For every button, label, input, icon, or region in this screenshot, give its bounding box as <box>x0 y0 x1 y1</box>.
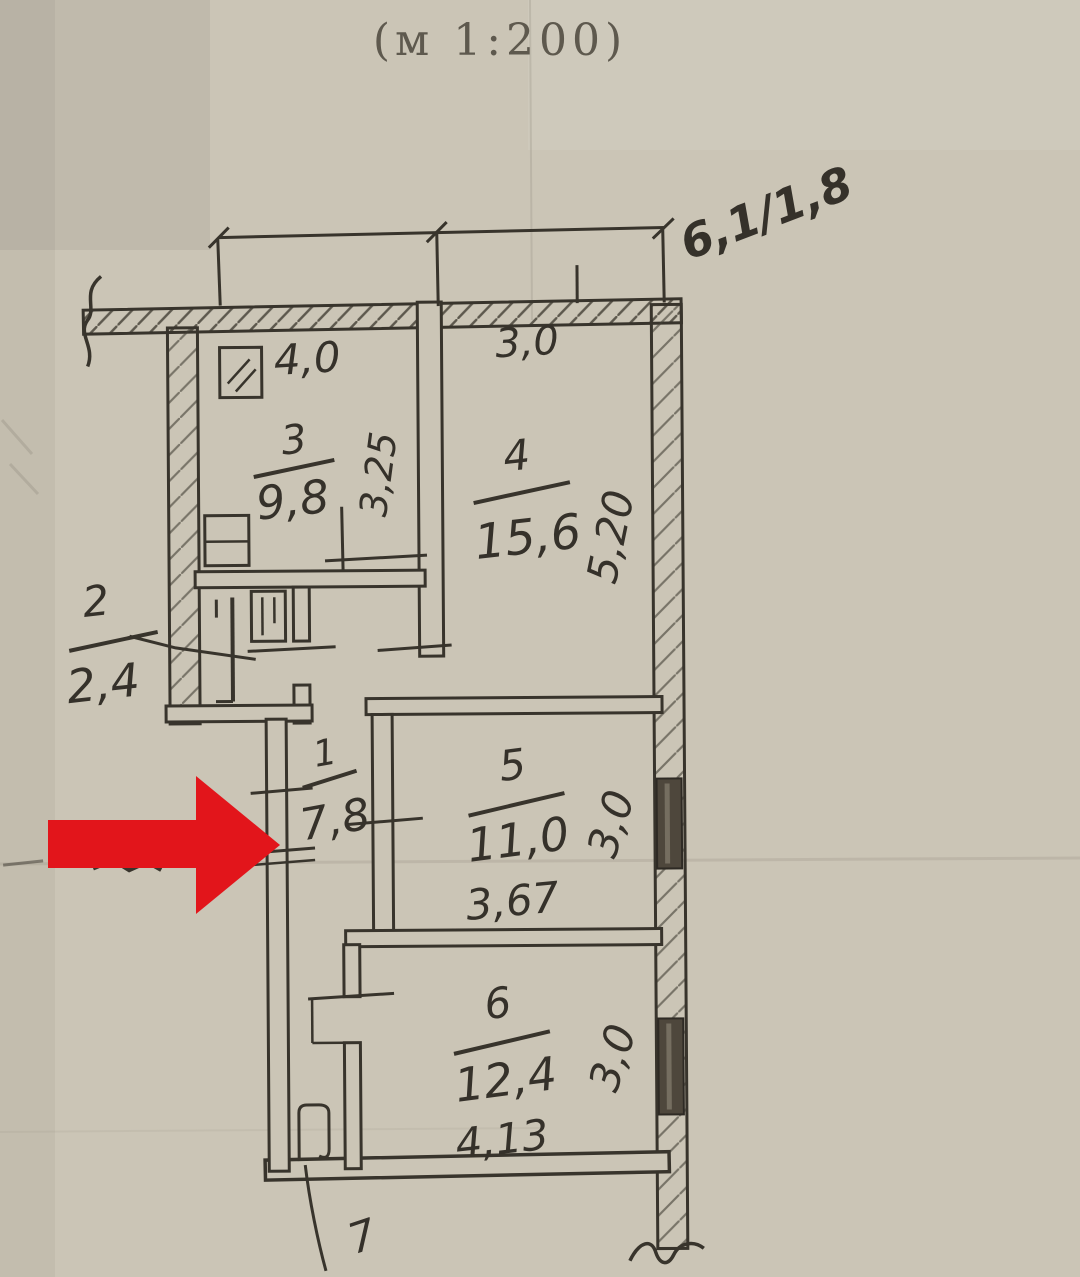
room-2-area: 2,4 <box>64 652 143 714</box>
wall-room3-room4 <box>417 302 443 656</box>
red-arrow-shaft <box>48 820 196 868</box>
room-3-number: 3 <box>279 416 309 465</box>
wall-room6-left-lower <box>344 1043 361 1169</box>
room-4-area: 15,6 <box>472 503 584 571</box>
wall-room3-bottom <box>195 570 425 588</box>
dim-top-right: 3,0 <box>494 318 560 368</box>
scale-label: (м 1:200) <box>373 15 627 66</box>
wall-bath-right-upper <box>293 587 309 641</box>
hall-dim-tick <box>342 507 343 571</box>
window-upper-stripe <box>665 783 671 863</box>
left-exterior-wall <box>167 328 200 724</box>
room-4-number: 4 <box>501 430 533 482</box>
dim-room5-width: 3,67 <box>464 872 562 930</box>
wall-room5-room6 <box>346 929 662 947</box>
dim-room6-width: 4,13 <box>453 1110 551 1169</box>
room-3-area: 9,8 <box>253 469 332 531</box>
room-2-number: 2 <box>80 575 112 627</box>
wall-corridor-left <box>266 719 289 1171</box>
wall-bath-bottom <box>166 705 312 722</box>
wall-corridor-room5 <box>372 714 394 938</box>
top-dim-tick-right <box>663 228 665 302</box>
dim-top-left: 4,0 <box>272 332 342 385</box>
floor-plan-svg: 3 9,8 4 15,6 2 2,4 1 7,8 5 <box>0 0 1080 1277</box>
bathtub-edge <box>232 598 233 702</box>
edge-shadow <box>0 0 55 1277</box>
scanned-floor-plan-page: 3 9,8 4 15,6 2 2,4 1 7,8 5 <box>0 0 1080 1277</box>
wall-room6-left-upper <box>344 945 360 997</box>
top-dim-tick-middle <box>437 232 439 306</box>
window-lower-stripe <box>666 1023 672 1109</box>
wall-room4-bottom <box>366 697 662 715</box>
